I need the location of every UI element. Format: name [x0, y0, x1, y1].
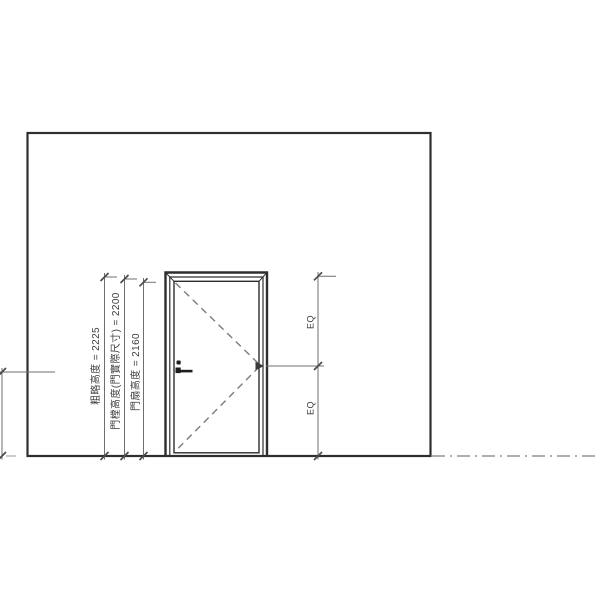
door-handle-lever	[180, 370, 193, 373]
door-frame-inner	[170, 277, 263, 456]
dimension-label-frame-height: 門樘高度(門實際尺寸) = 2200	[112, 292, 122, 430]
door-handle	[176, 361, 193, 374]
eq-label-lower: EQ	[306, 401, 315, 415]
door-frame-outer	[166, 273, 268, 457]
door-elevation-drawing	[0, 0, 600, 600]
door-handle-base	[176, 368, 181, 374]
drawing-canvas[interactable]: 粗略高度 = 2225 門樘高度(門實際尺寸) = 2200 門扇高度 = 21…	[0, 0, 600, 600]
eq-label-upper: EQ	[306, 314, 315, 328]
door-lock-knob	[177, 361, 181, 365]
dimension-eq	[266, 272, 336, 460]
wall-outline	[28, 133, 431, 456]
door-leaf	[174, 281, 259, 453]
door	[166, 273, 268, 457]
dimension-label-rough-height: 粗略高度 = 2225	[92, 327, 102, 405]
door-swing-dashed-line	[176, 283, 261, 451]
dimension-label-leaf-height: 門扇高度 = 2160	[132, 333, 142, 411]
